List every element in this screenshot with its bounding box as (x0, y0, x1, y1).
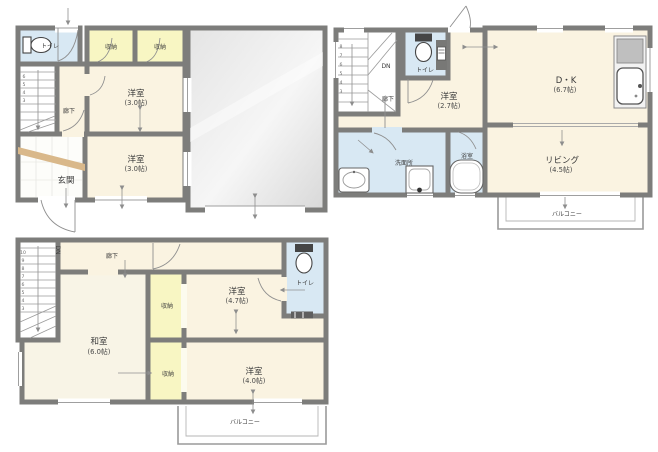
label-tatami-p3: 和室 (90, 336, 108, 347)
size-bedroom-b-p3: (4.0帖) (243, 376, 266, 385)
label-dk-p2: D・K (556, 76, 577, 86)
kitchen-counter-p2 (614, 36, 646, 108)
label-bedroom-b-p3: 洋室 (245, 366, 263, 377)
stair-num: 7 (340, 53, 343, 59)
size-bedroom-b-p1: (3.0帖) (125, 164, 148, 173)
plan-2: 8 7 6 5 4 3 (332, 6, 654, 229)
label-bedroom-a-p1: 洋室 (127, 88, 145, 99)
label-balcony-p3: バルコニー (230, 419, 260, 426)
label-toilet-p2: トイレ (416, 67, 434, 74)
size-bedroom-a-p1: (3.0帖) (125, 98, 148, 107)
toilet-window-p3 (291, 312, 313, 319)
washbasin-icon-p2 (339, 168, 369, 192)
stair-num: 6 (340, 62, 343, 68)
label-entrance-p1: 玄関 (57, 175, 74, 186)
stair-num: 8 (22, 266, 25, 272)
label-hallway-p2: 廊下 (382, 95, 394, 103)
label-toilet-p1: トイレ (41, 43, 59, 50)
label-bedroom-b-p1: 洋室 (127, 154, 145, 165)
stair-num: 4 (23, 90, 26, 96)
stair-num: 3 (23, 98, 26, 104)
size-bedroom-a-p3: (4.7帖) (226, 296, 249, 305)
label-hallway-p3: 廊下 (106, 252, 118, 260)
plan-1: 6 5 4 3 トイレ 収納 収納 洋室 (3.0帖) 廊下 玄関 洋室 (3.… (18, 8, 325, 232)
label-closet-a-p3: 収納 (161, 302, 173, 310)
stair-num: 4 (340, 80, 343, 86)
label-bedroom-a-p3: 洋室 (228, 286, 246, 297)
toilet-icon-p3 (295, 244, 313, 273)
stair-num: 5 (23, 82, 26, 88)
floor-plan-svg: 6 5 4 3 トイレ 収納 収納 洋室 (3.0帖) 廊下 玄関 洋室 (3.… (0, 0, 658, 452)
label-washroom-p2: 洗面所 (395, 159, 413, 167)
label-living-p2: リビング (545, 155, 580, 166)
stair-num: 6 (22, 282, 25, 288)
stair-num: 5 (22, 290, 25, 296)
label-bath-p2: 浴室 (461, 152, 473, 160)
faucet-icon (638, 84, 642, 88)
stair-num: 8 (340, 44, 343, 50)
label-closet-b-p1: 収納 (154, 43, 166, 51)
floor-plan-canvas: 6 5 4 3 トイレ 収納 収納 洋室 (3.0帖) 廊下 玄関 洋室 (3.… (0, 0, 658, 452)
bathtub-icon-p2 (450, 160, 483, 193)
plan-3: 10 9 8 7 6 5 4 3 DN 廊下 収納 洋室 (4.7帖) トイレ … (15, 240, 326, 444)
label-hallway-p1: 廊下 (63, 107, 75, 115)
size-living-p2: (4.5帖) (550, 165, 573, 174)
label-bedroom-p2: 洋室 (440, 91, 458, 102)
stair-num: 3 (340, 89, 343, 95)
label-closet-b-p3: 収納 (162, 370, 174, 378)
stair-num: 5 (340, 71, 343, 77)
stair-num: 6 (23, 74, 26, 80)
hallway-p3 (58, 240, 286, 272)
size-bedroom-p2: (2.7帖) (438, 101, 461, 110)
label-closet-a-p1: 収納 (105, 43, 117, 51)
toilet-cabinet-p2 (436, 40, 447, 70)
washing-machine-icon-p2 (406, 166, 433, 193)
label-toilet-p3: トイレ (296, 280, 314, 287)
stair-num: 4 (22, 298, 25, 304)
label-balcony-p2: バルコニー (552, 211, 582, 218)
label-dn-p3: DN (54, 245, 61, 254)
stair-num: 10 (20, 250, 26, 256)
toilet-icon-p2 (415, 34, 432, 62)
stair-num: 3 (22, 306, 25, 312)
size-dk-p2: (6.7帖) (554, 85, 577, 94)
label-dn-p2: DN (381, 63, 390, 70)
stair-num: 9 (22, 258, 25, 264)
stair-num: 7 (22, 274, 25, 280)
size-tatami-p3: (6.0帖) (88, 347, 111, 356)
